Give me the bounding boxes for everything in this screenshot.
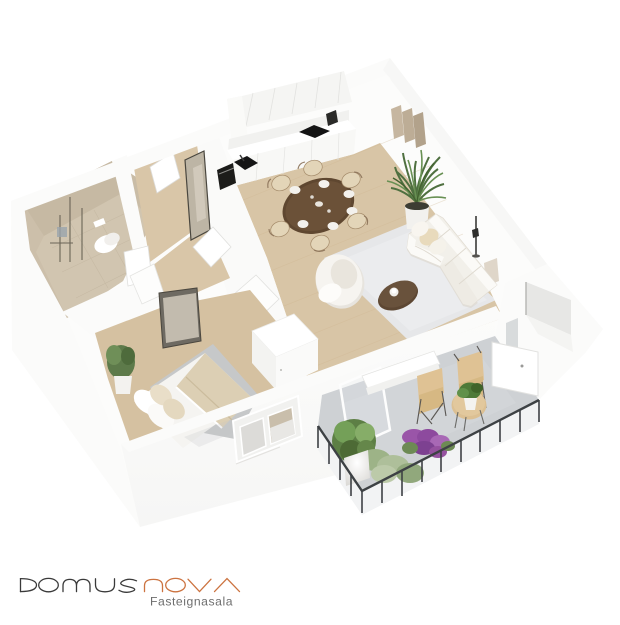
- svg-text:Fasteignasala: Fasteignasala: [150, 595, 233, 609]
